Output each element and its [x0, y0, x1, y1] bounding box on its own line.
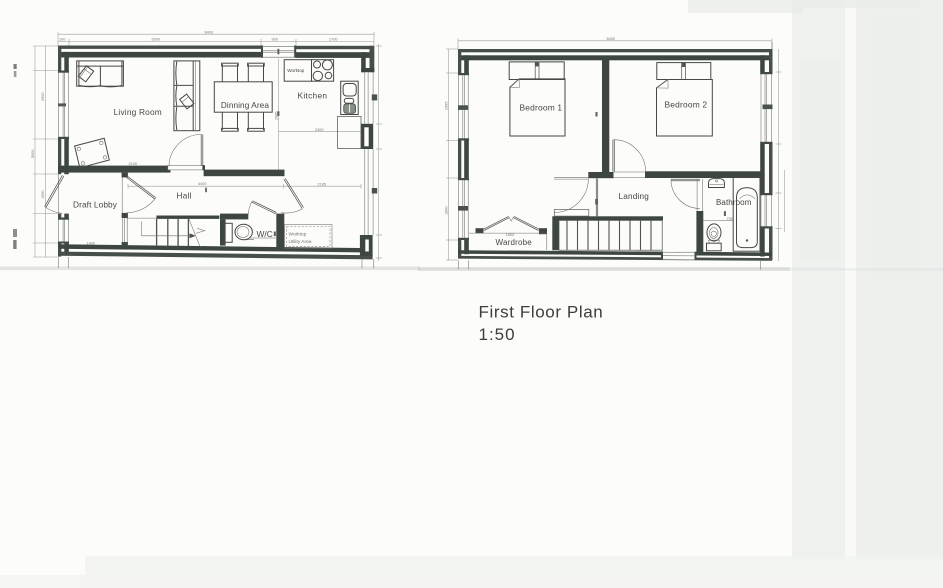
svg-text:2300: 2300 — [315, 128, 323, 132]
svg-text:2985: 2985 — [444, 102, 448, 110]
svg-text:Bedroom 1: Bedroom 1 — [520, 103, 563, 113]
svg-text:2900: 2900 — [41, 93, 45, 101]
svg-text:5000: 5000 — [152, 38, 160, 42]
svg-text:Wardrobe: Wardrobe — [496, 238, 533, 247]
svg-text:5900: 5900 — [31, 150, 35, 158]
svg-text:4400: 4400 — [198, 182, 206, 186]
svg-text:Worktop: Worktop — [289, 232, 307, 238]
svg-text:First Floor Plan: First Floor Plan — [479, 303, 604, 322]
svg-text:Landing: Landing — [619, 192, 650, 201]
svg-text:1800: 1800 — [506, 233, 514, 237]
svg-text:Kitchen: Kitchen — [298, 91, 328, 101]
svg-text:1:50: 1:50 — [479, 325, 516, 344]
svg-text:100: 100 — [59, 38, 65, 42]
svg-text:Bathroom: Bathroom — [716, 198, 752, 207]
svg-text:8400: 8400 — [205, 30, 213, 34]
svg-text:Utility Area: Utility Area — [289, 239, 312, 245]
svg-text:1400: 1400 — [87, 241, 95, 245]
svg-text:750: 750 — [727, 217, 733, 221]
svg-text:2100: 2100 — [129, 162, 137, 166]
svg-text:900: 900 — [272, 38, 278, 42]
svg-text:Draft Lobby: Draft Lobby — [73, 200, 118, 210]
svg-text:2185: 2185 — [318, 182, 326, 186]
svg-text:Dinning Area: Dinning Area — [221, 101, 269, 110]
svg-text:1700: 1700 — [329, 38, 337, 42]
svg-text:W/C: W/C — [257, 229, 273, 239]
svg-text:1500: 1500 — [41, 191, 45, 199]
svg-text:Bedroom 2: Bedroom 2 — [665, 100, 708, 110]
svg-text:Worktop: Worktop — [287, 68, 304, 73]
svg-text:1890: 1890 — [444, 207, 448, 215]
svg-text:8400: 8400 — [607, 37, 615, 41]
svg-text:Hall: Hall — [177, 191, 192, 200]
svg-text:Living Room: Living Room — [114, 107, 162, 117]
